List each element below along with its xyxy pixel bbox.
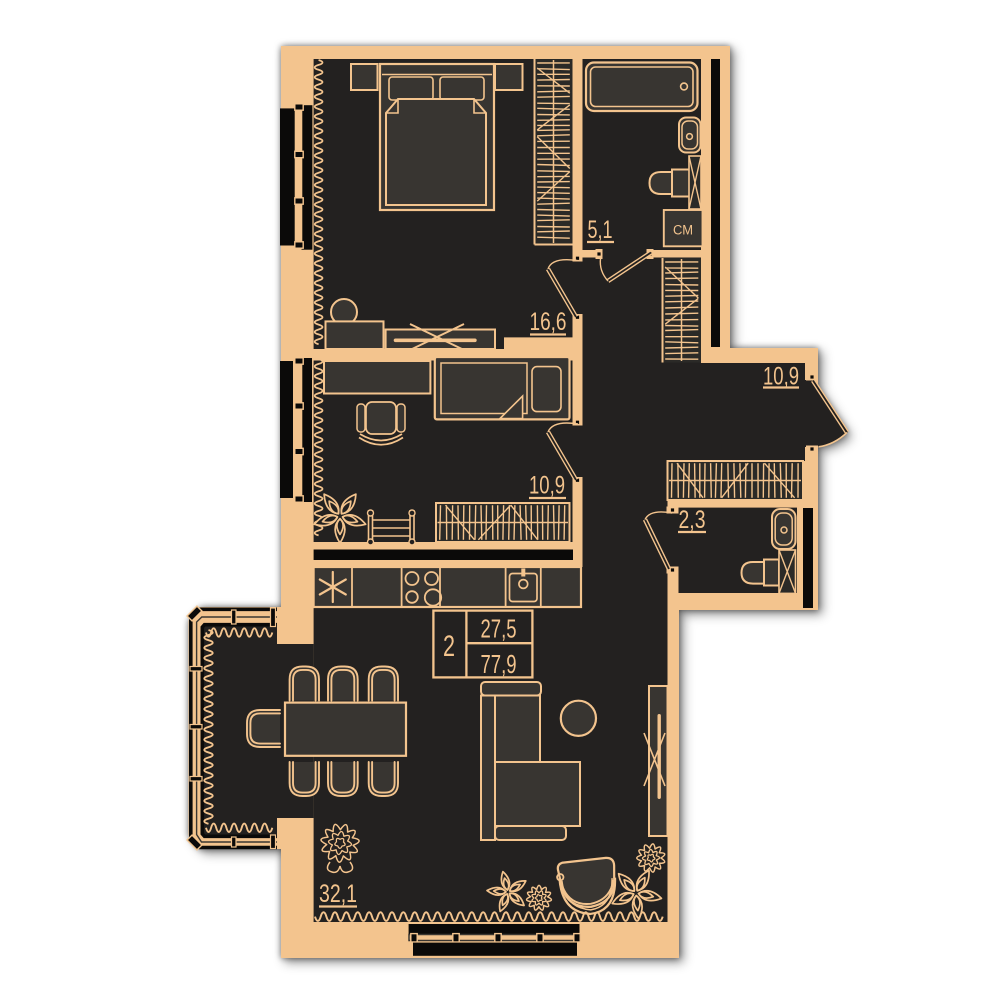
svg-text:32,1: 32,1 xyxy=(319,880,357,908)
svg-text:СМ: СМ xyxy=(673,223,693,238)
svg-text:16,6: 16,6 xyxy=(530,308,567,336)
svg-text:2: 2 xyxy=(443,630,455,663)
svg-text:77,9: 77,9 xyxy=(481,651,517,679)
svg-text:5,1: 5,1 xyxy=(588,216,613,244)
svg-text:10,9: 10,9 xyxy=(529,472,565,500)
svg-text:27,5: 27,5 xyxy=(481,616,517,644)
svg-text:2,3: 2,3 xyxy=(679,506,706,534)
svg-text:10,9: 10,9 xyxy=(763,363,799,391)
